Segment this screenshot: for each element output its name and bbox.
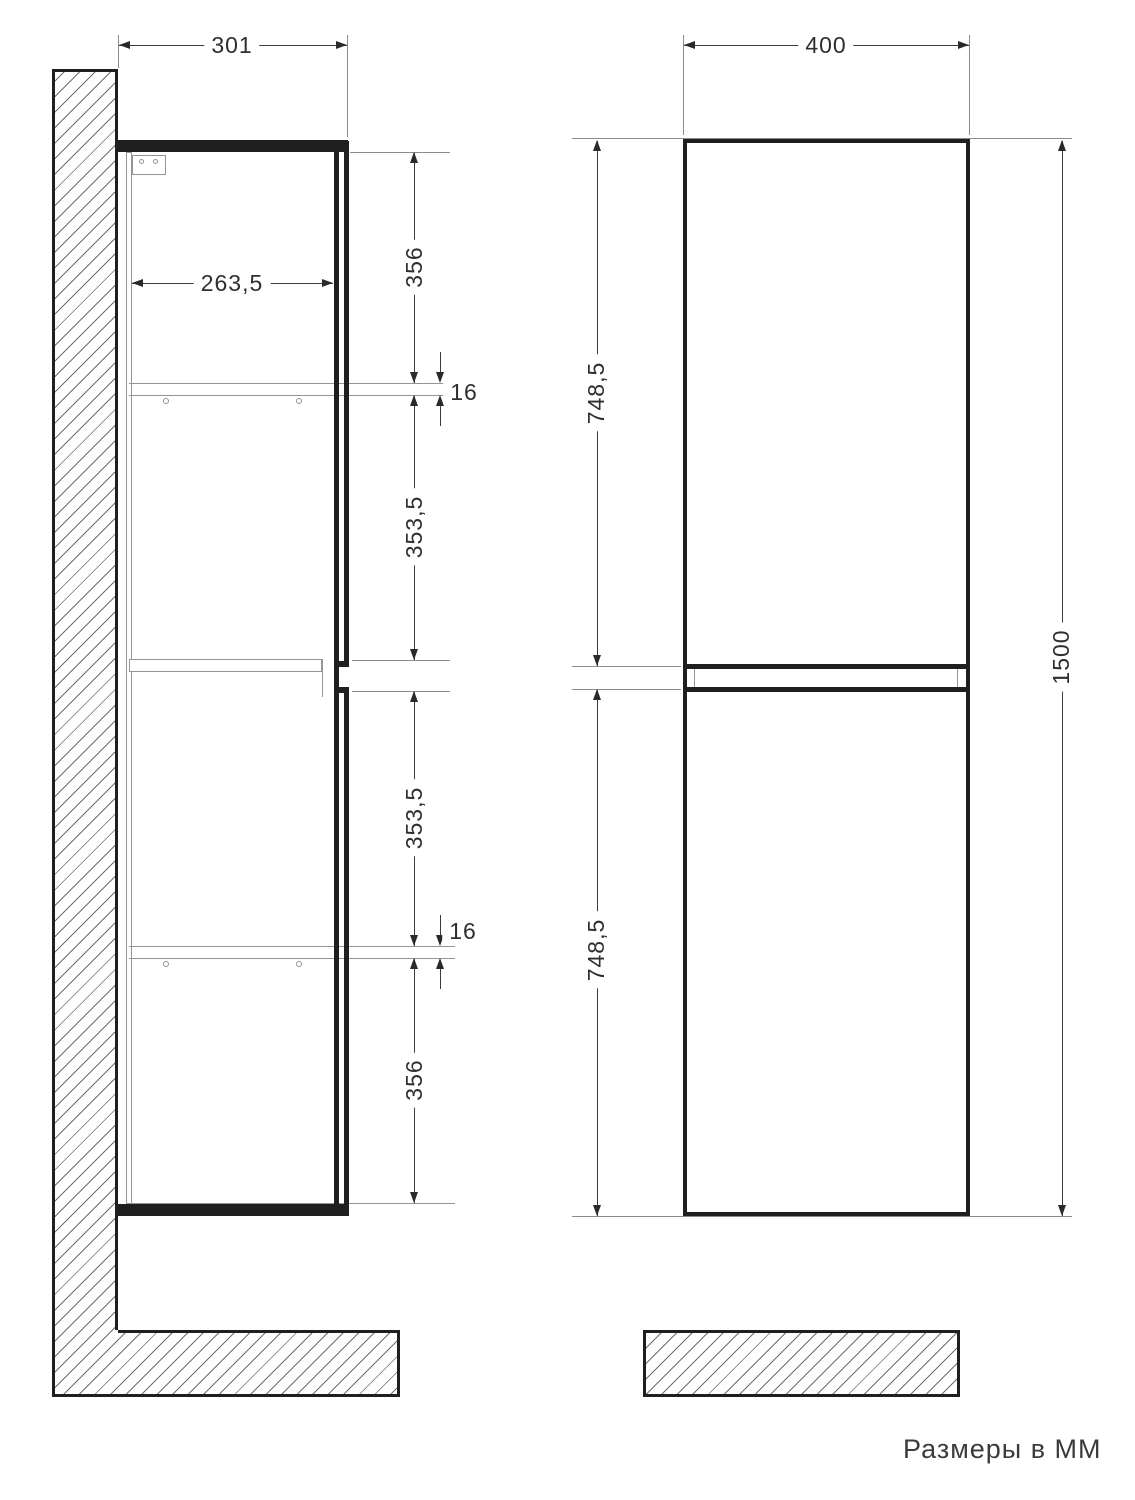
shelf-pin-hole: [296, 398, 302, 404]
ext-line: [350, 152, 450, 153]
dim-label-door-upper: 748,5: [583, 355, 609, 432]
shelf-pin-hole: [163, 961, 169, 967]
ext-line-bottom: [572, 1216, 1072, 1217]
dim-label-top-to-shelf: 356: [401, 239, 427, 294]
side-panel-front-edge: [334, 140, 339, 1216]
arrowhead: [593, 140, 601, 151]
floor-section-right: [643, 1330, 960, 1397]
cabinet-front-outline: [683, 139, 970, 1216]
door-gap-upper-edge: [683, 664, 970, 669]
ext-line: [118, 35, 119, 68]
arrowhead: [132, 279, 143, 287]
ext-line: [352, 691, 450, 692]
floor-left-top-edge: [118, 1330, 400, 1333]
ext-line: [347, 35, 348, 137]
dim-label-shelf-thickness-top: 16: [443, 379, 485, 405]
bracket-screw-hole: [153, 159, 158, 164]
shelf-pin-hole: [296, 961, 302, 967]
arrowhead: [322, 279, 333, 287]
dim-label-width: 400: [798, 32, 853, 58]
arrowhead: [1058, 1205, 1066, 1216]
ext-line: [572, 666, 681, 667]
door-gap-lower-edge: [683, 687, 970, 692]
arrowhead: [336, 41, 347, 49]
dim-label-shelf-thickness-bottom: 16: [442, 918, 484, 944]
dim-label-depth-inner: 263,5: [194, 270, 271, 296]
shelf-top-line: [129, 383, 455, 384]
shelf-bottom-line: [129, 395, 455, 396]
arrowhead: [410, 958, 418, 969]
wall-outline-bottom: [52, 1394, 400, 1397]
arrowhead: [593, 655, 601, 666]
arrowhead: [410, 1192, 418, 1203]
arrowhead: [1058, 140, 1066, 151]
ext-line: [969, 35, 970, 135]
shelf-bottom-line: [129, 958, 455, 959]
arrowhead: [410, 372, 418, 383]
middle-divider: [129, 659, 322, 672]
dim-label-shelf-to-middle-upper: 353,5: [401, 489, 427, 566]
technical-drawing-sheet: 301 263,5 356 16 353,5 353,5 16 356: [0, 0, 1135, 1500]
arrowhead: [593, 689, 601, 700]
door-upper-bottom-stub: [337, 661, 349, 667]
dim-label-door-lower: 748,5: [583, 912, 609, 989]
arrowhead: [410, 935, 418, 946]
wall-outline-right-lower: [397, 1330, 400, 1397]
arrowhead: [684, 41, 695, 49]
arrowhead: [436, 958, 444, 969]
dim-line-shelf-thickness-top: [440, 406, 441, 426]
divider-notch-line: [322, 659, 323, 697]
arrowhead: [410, 395, 418, 406]
door-upper-side: [344, 141, 349, 666]
dim-line-shelf-thickness-bottom: [440, 915, 441, 935]
dim-label-height-total: 1500: [1048, 622, 1074, 691]
bottom-panel: [118, 1204, 349, 1216]
dim-label-shelf-to-bottom: 356: [401, 1052, 427, 1107]
door-lower-top-stub: [337, 687, 349, 693]
shelf-top-line: [129, 946, 455, 947]
arrowhead: [410, 691, 418, 702]
back-panel: [126, 152, 132, 1204]
bracket-screw-hole: [139, 159, 144, 164]
ext-line: [352, 660, 450, 661]
dim-line-shelf-thickness-bottom: [440, 969, 441, 989]
top-panel: [118, 140, 348, 152]
door-lower-side: [344, 688, 349, 1213]
ext-line: [572, 689, 681, 690]
ext-line: [683, 35, 684, 135]
arrowhead: [410, 152, 418, 163]
arrowhead: [119, 41, 130, 49]
dim-label-depth-total: 301: [204, 32, 259, 58]
dim-line-shelf-thickness-top: [440, 352, 441, 372]
wall-outline-left: [52, 69, 55, 1397]
dim-label-middle-to-shelf-lower: 353,5: [401, 780, 427, 857]
units-note: Размеры в ММ: [903, 1434, 1102, 1465]
hanging-bracket: [132, 155, 166, 175]
arrowhead: [593, 1205, 601, 1216]
arrowhead: [958, 41, 969, 49]
shelf-pin-hole: [163, 398, 169, 404]
wall-outline-top: [52, 69, 118, 72]
arrowhead: [410, 649, 418, 660]
wall-right-edge: [115, 69, 118, 1330]
